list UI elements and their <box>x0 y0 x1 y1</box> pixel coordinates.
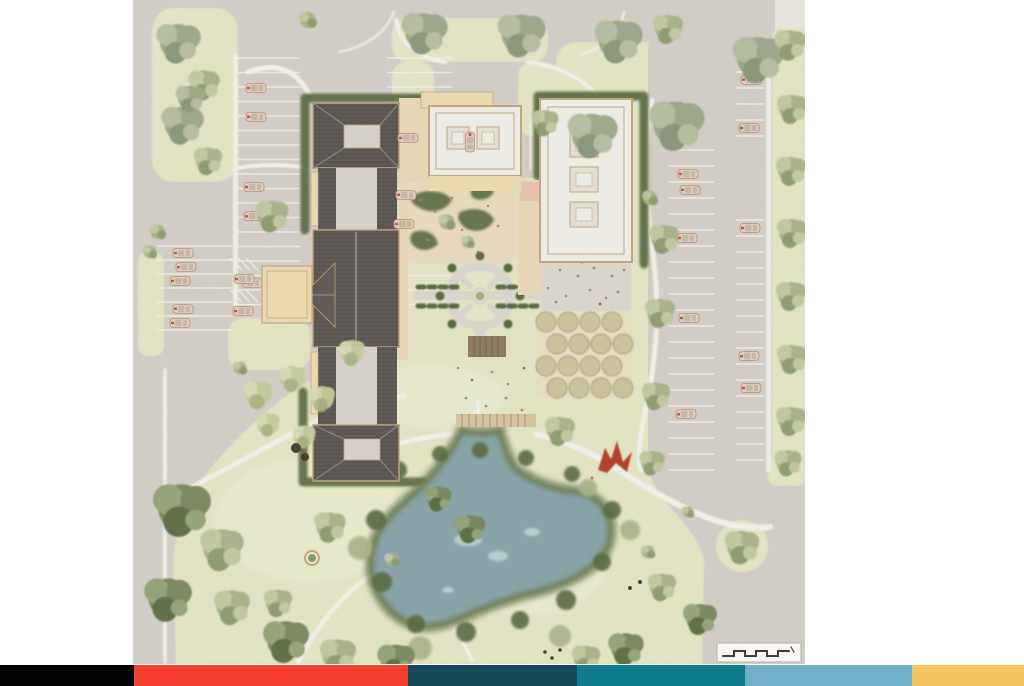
site-plan-svg <box>133 0 805 664</box>
footer-stripe-deep-teal <box>408 665 577 686</box>
footer-stripe-black <box>0 665 134 686</box>
footer-stripe-sky-blue <box>745 665 912 686</box>
footer-stripe-teal <box>577 665 745 686</box>
footer-bar <box>0 665 1024 686</box>
paper-grain <box>133 0 805 664</box>
plan-container <box>133 0 805 669</box>
slide-canvas <box>0 0 1024 686</box>
footer-stripe-amber <box>912 665 1024 686</box>
footer-stripe-red <box>134 665 408 686</box>
